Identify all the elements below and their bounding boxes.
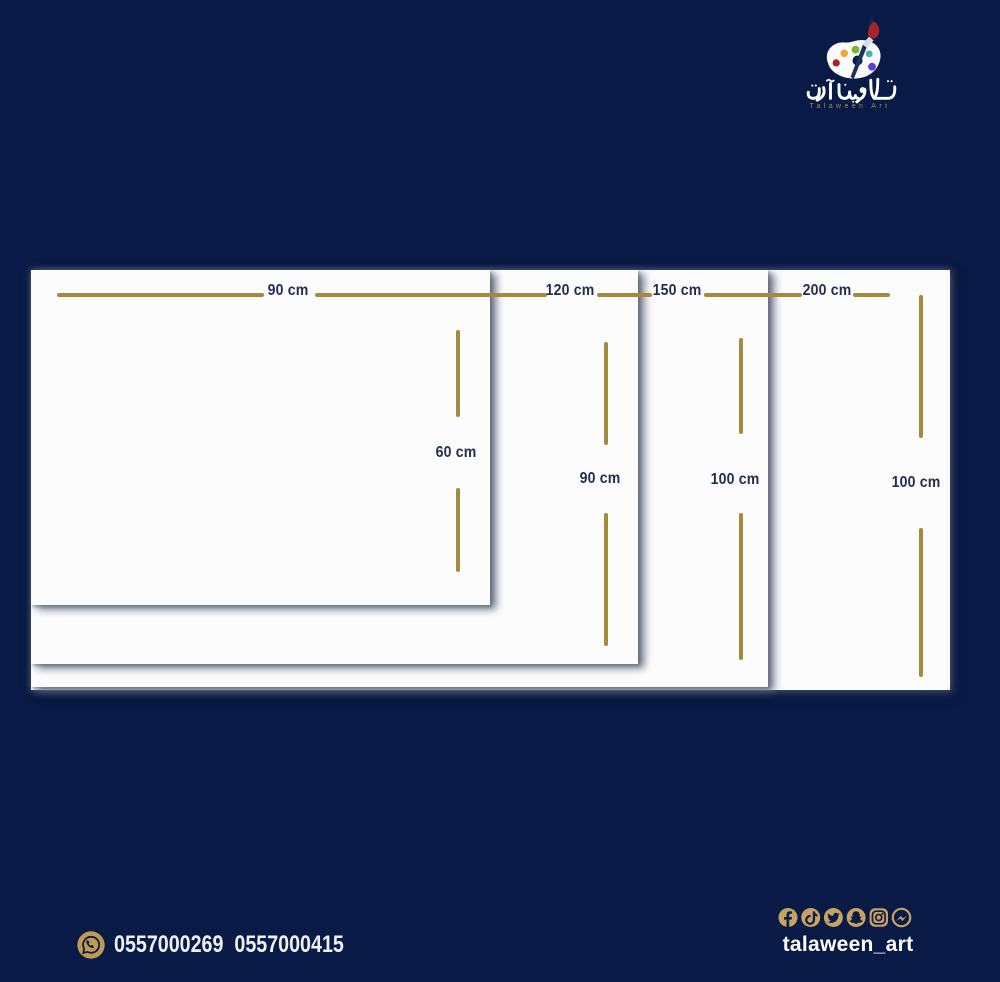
svg-text:Talaween Art: Talaween Art (810, 103, 891, 110)
